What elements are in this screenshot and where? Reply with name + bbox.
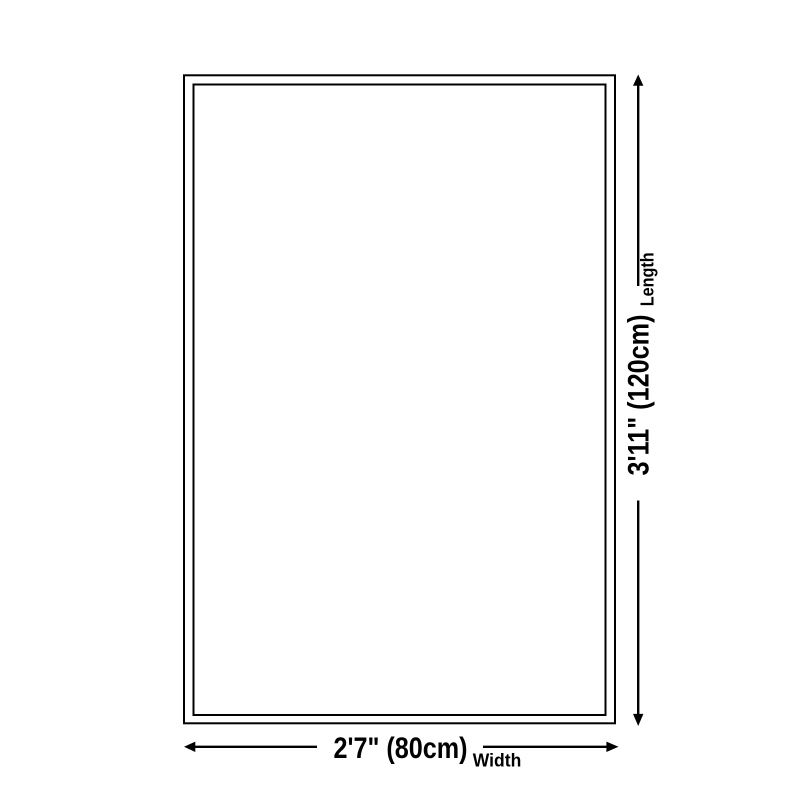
svg-text:Length: Length xyxy=(638,252,658,306)
svg-text:2'7" (80cm): 2'7" (80cm) xyxy=(334,732,468,765)
svg-text:Width: Width xyxy=(473,750,522,770)
svg-text:3'11" (120cm): 3'11" (120cm) xyxy=(623,315,656,476)
